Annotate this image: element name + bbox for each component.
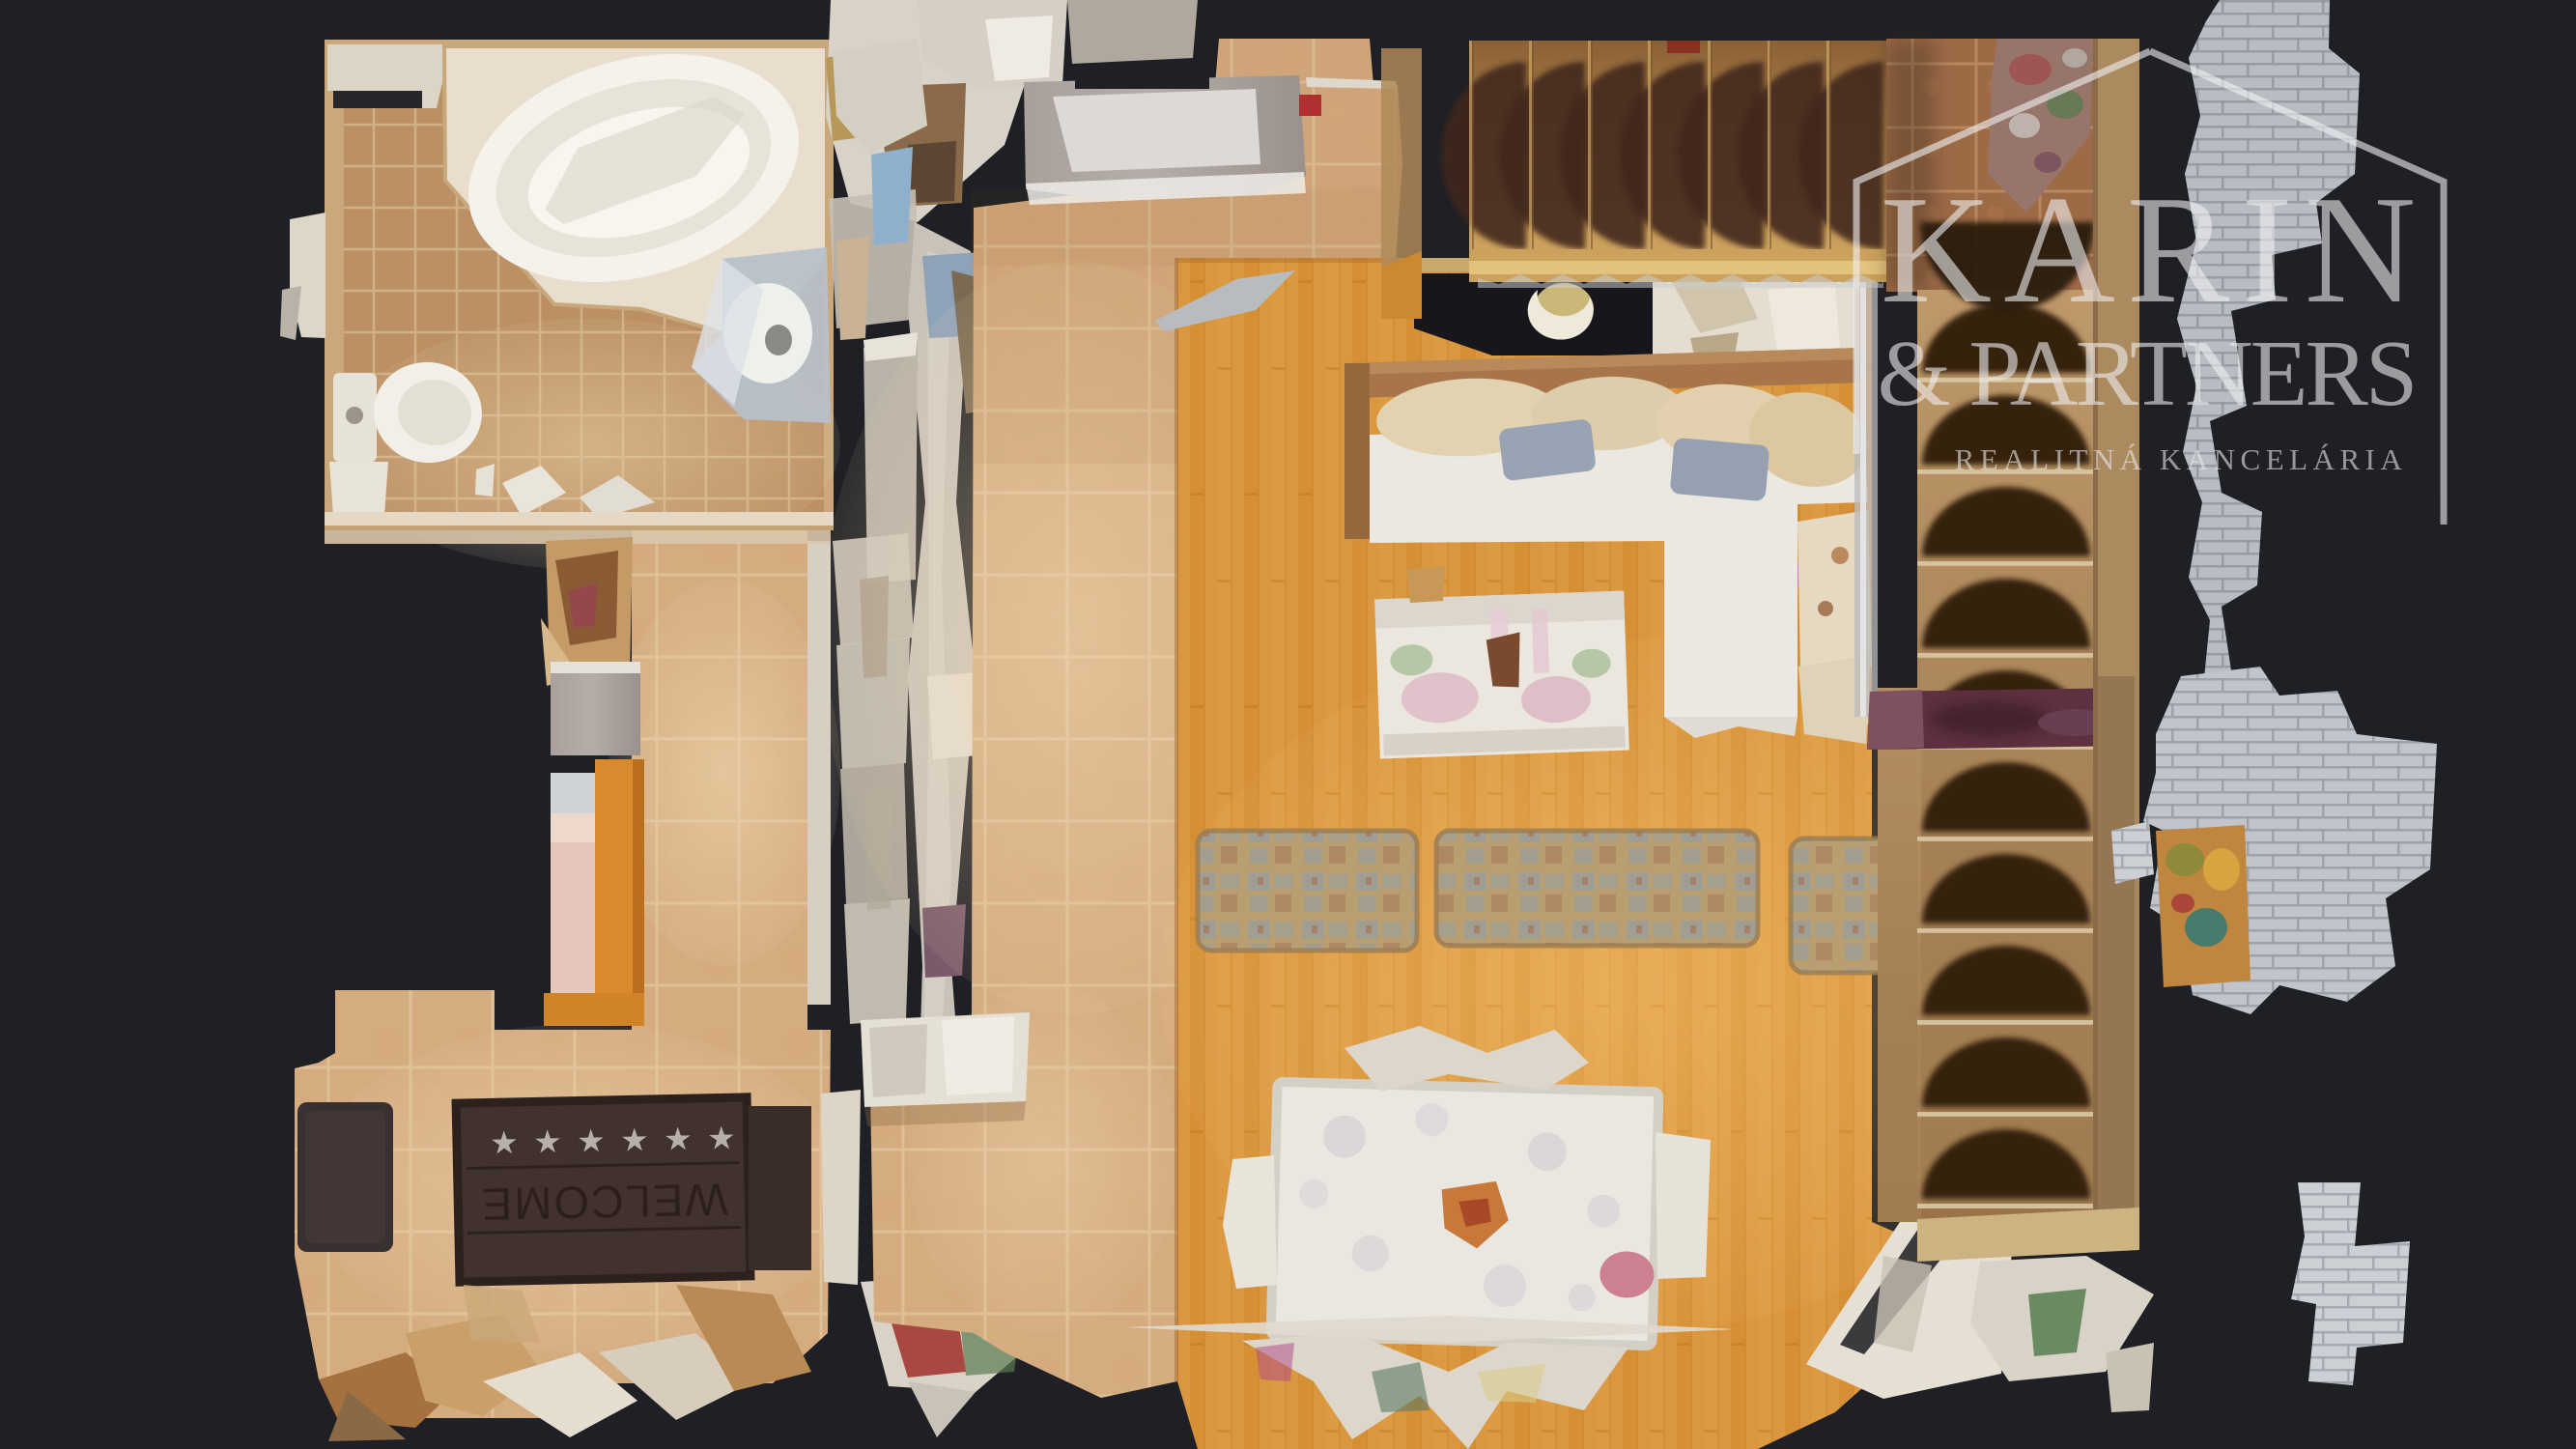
- svg-text:★: ★: [707, 1120, 736, 1156]
- svg-text:KARIN: KARIN: [1881, 163, 2428, 335]
- svg-text:★: ★: [620, 1122, 649, 1158]
- svg-text:★: ★: [533, 1123, 562, 1160]
- svg-text:★: ★: [490, 1124, 519, 1161]
- svg-text:& PARTNERS: & PARTNERS: [1878, 322, 2416, 426]
- svg-text:★: ★: [577, 1122, 606, 1159]
- svg-text:★: ★: [664, 1121, 693, 1157]
- svg-text:WELCOME: WELCOME: [479, 1174, 728, 1230]
- svg-text:REALITNÁ KANCELÁRIA: REALITNÁ KANCELÁRIA: [1955, 442, 2408, 476]
